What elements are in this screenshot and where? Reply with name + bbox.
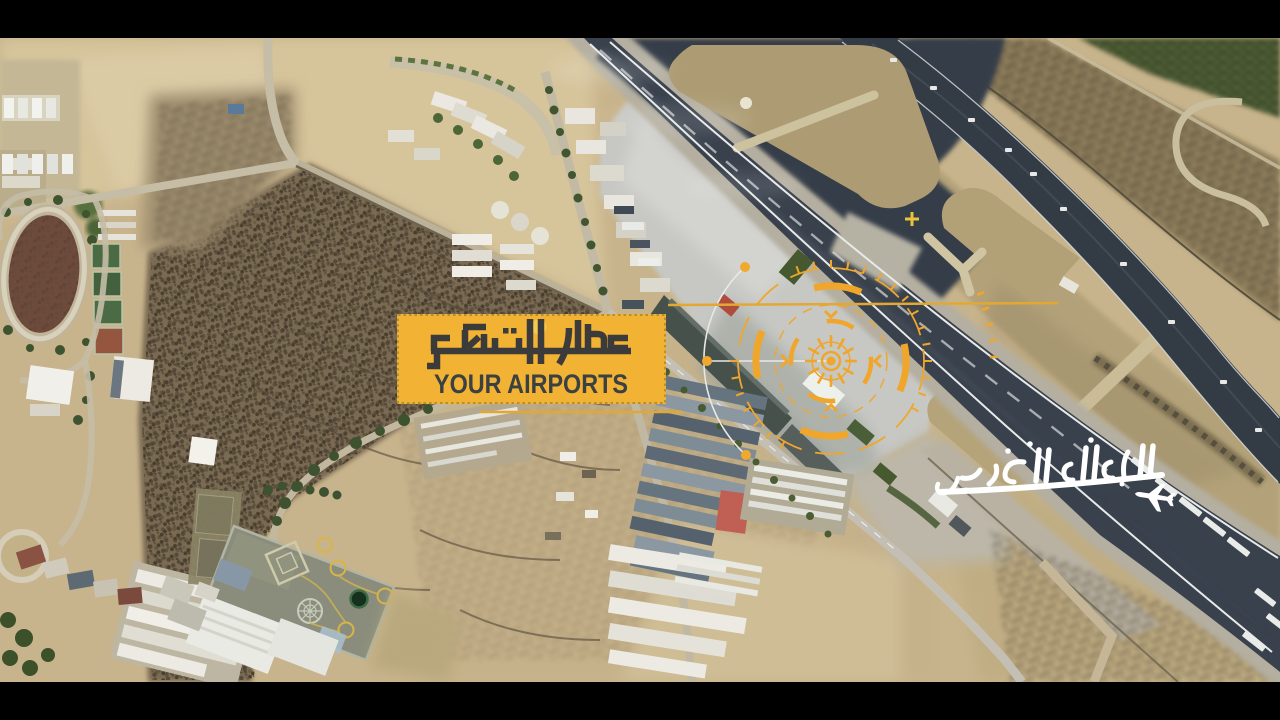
svg-text:YOUR AIRPORTS: YOUR AIRPORTS (434, 369, 628, 399)
